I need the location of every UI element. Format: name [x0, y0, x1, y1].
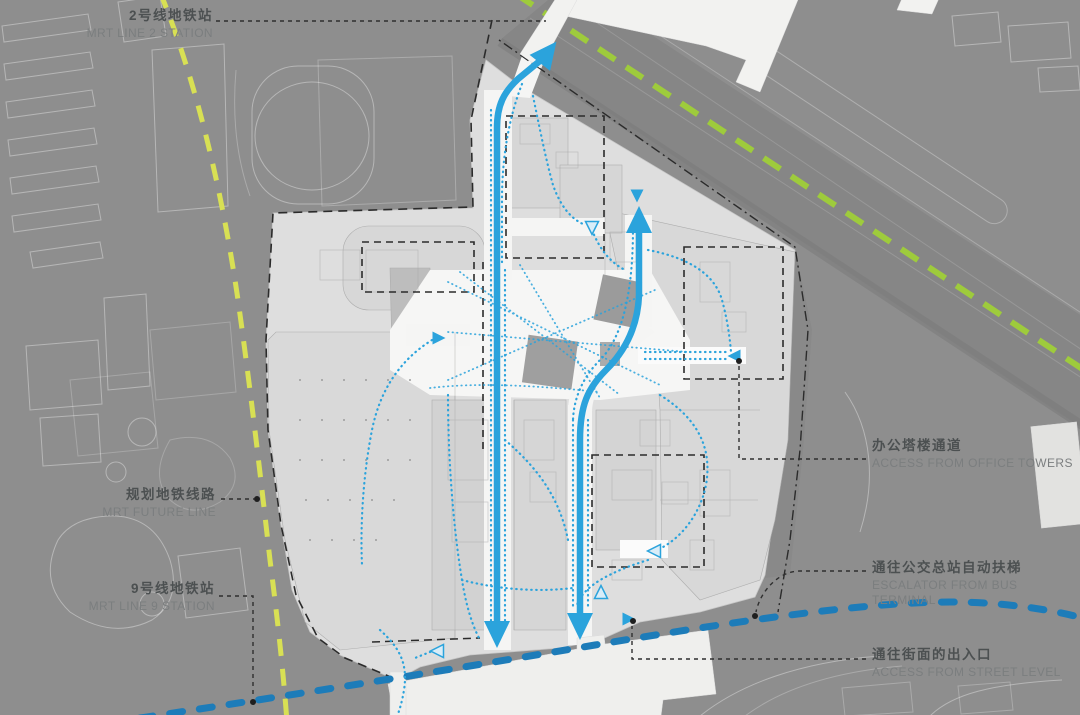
site-plan-canvas [0, 0, 1080, 715]
site-plan-diagram: 2号线地铁站 MRT LINE 2 STATION 规划地铁线路 MRT FUT… [0, 0, 1080, 715]
